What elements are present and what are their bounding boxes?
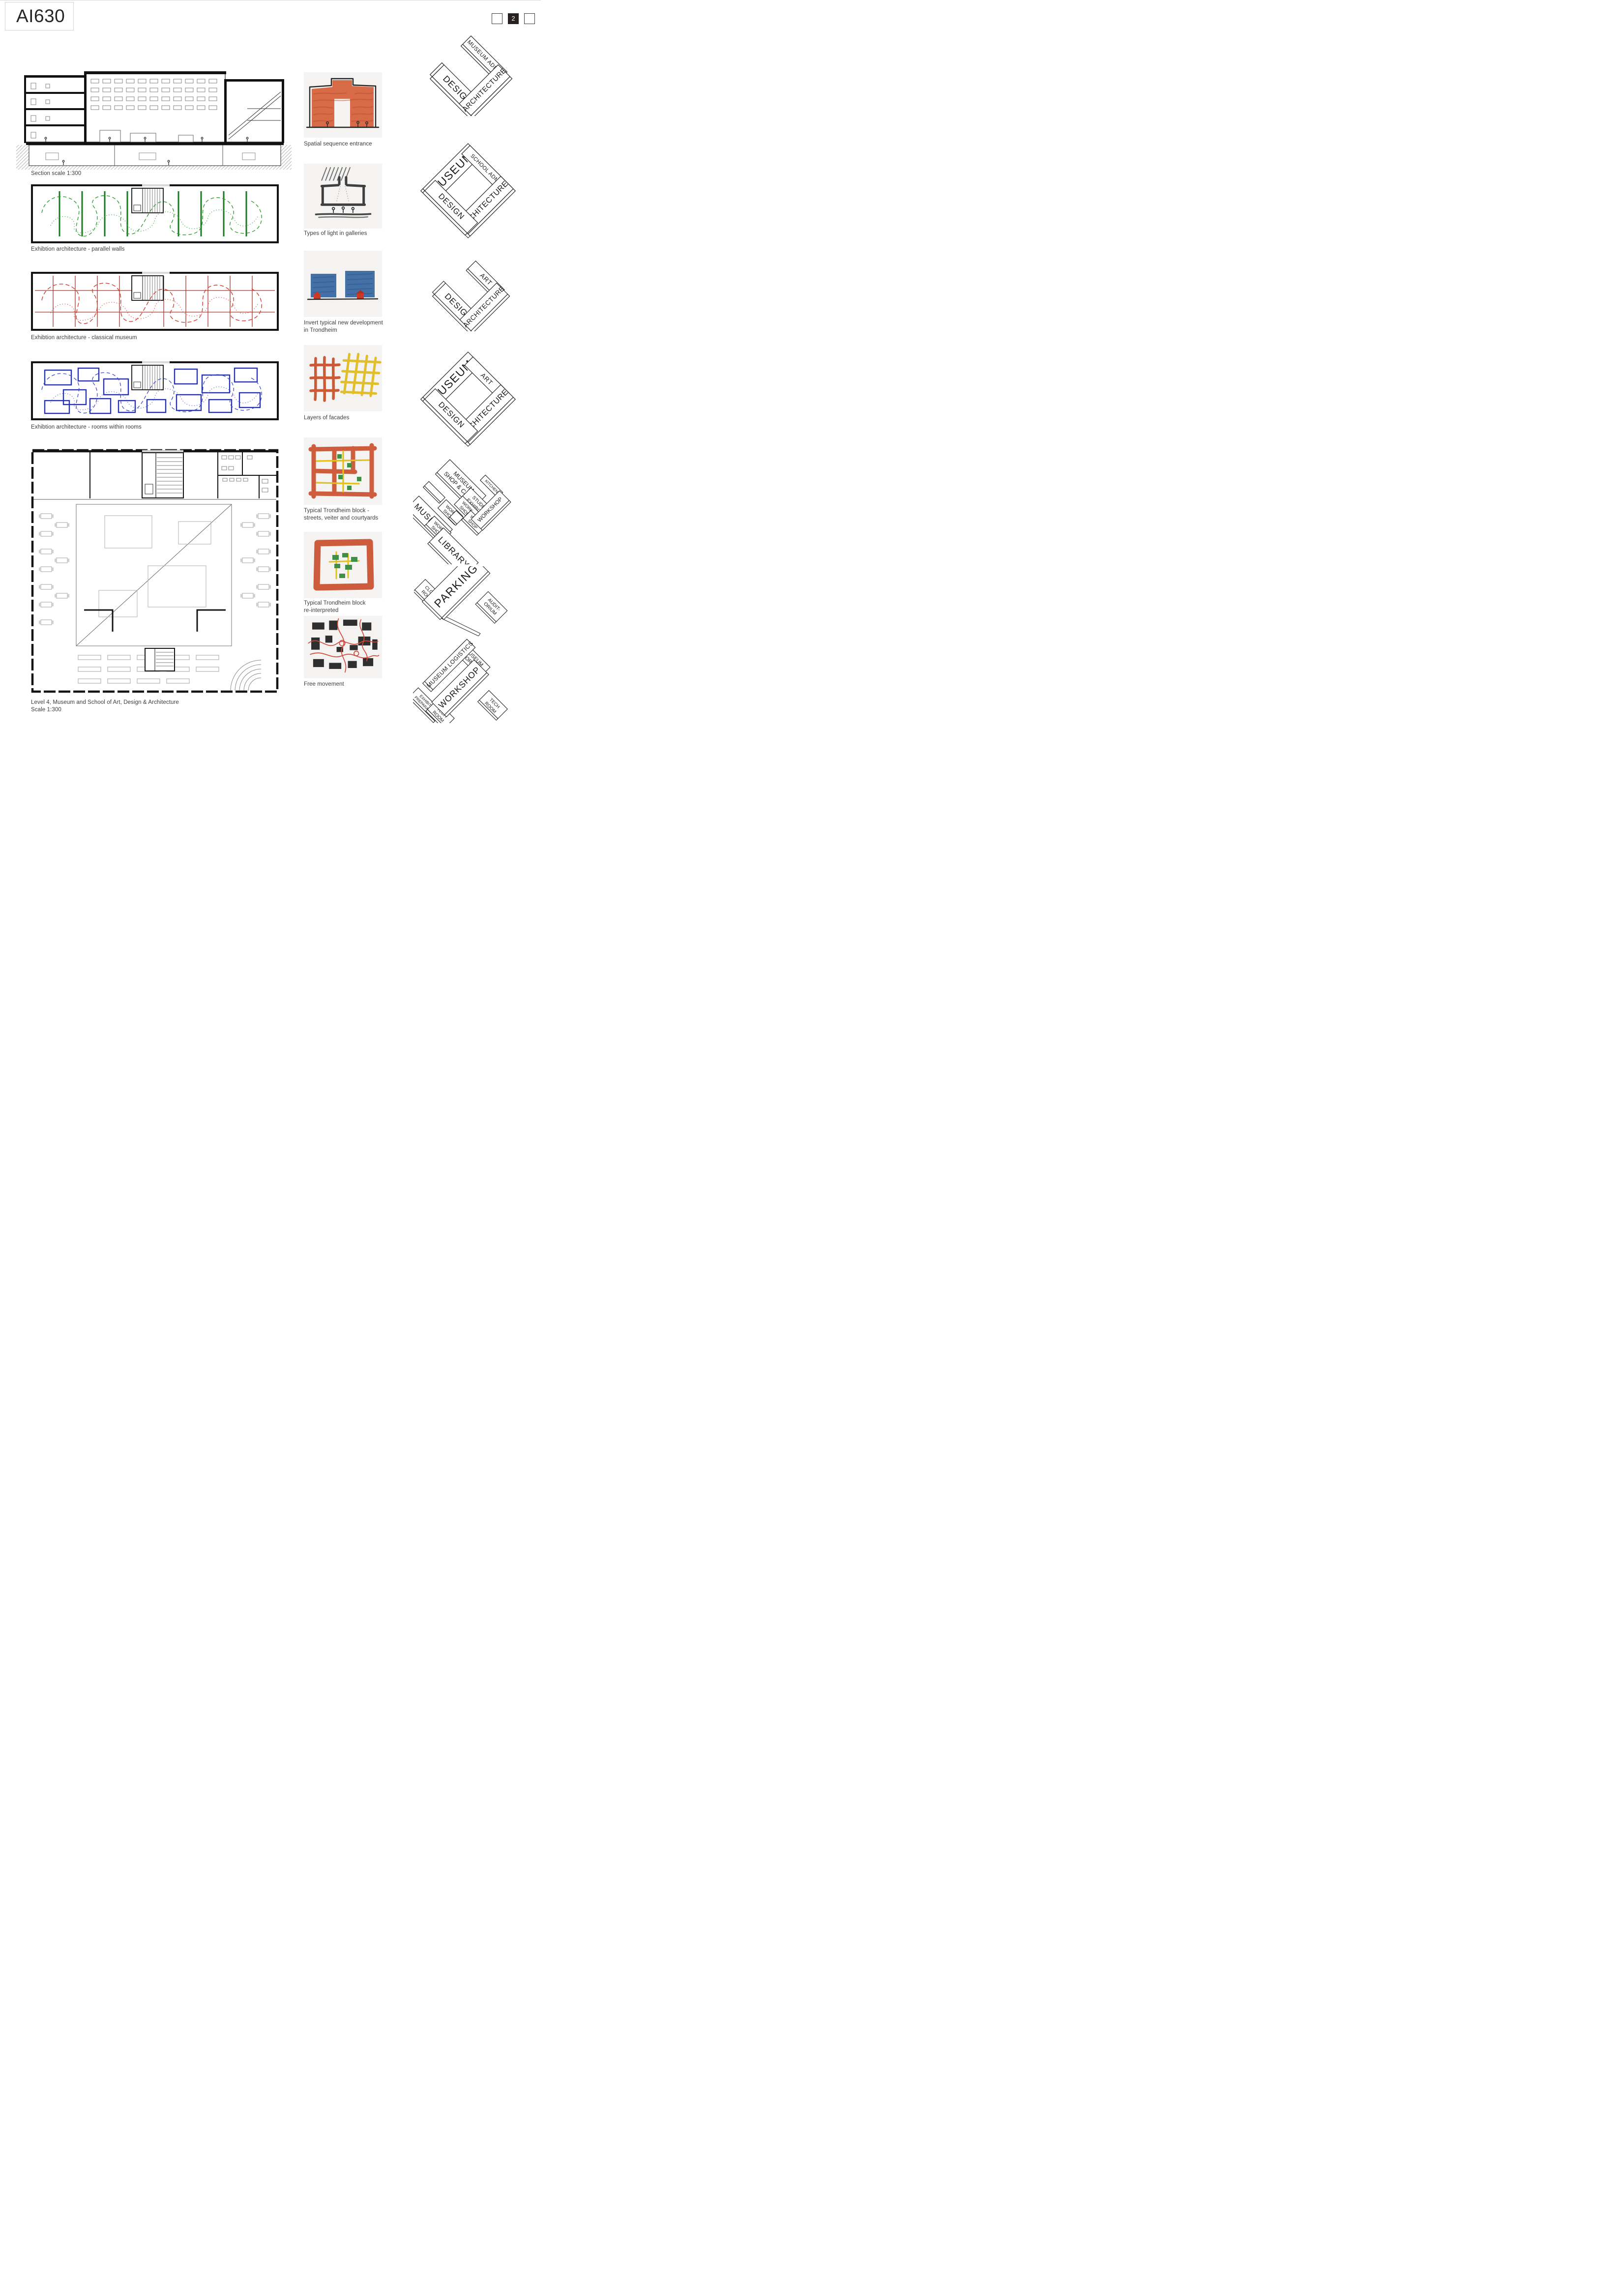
sketch3-caption-line1: Invert typical new development [304, 320, 392, 327]
diagram-museum-school-ring: MUSEUM SCHOOL ADMIN ARCHITECTURE DESIGN [414, 141, 522, 240]
sketch5-caption-line2: streets, veiter and courtyards [304, 515, 397, 522]
page-indicator: 2 [492, 13, 538, 24]
page-top-hairline [0, 0, 541, 0]
plan-parallel-walls [31, 184, 279, 243]
diagram-parking-level: CLOAK ROOM PARKING AUDIT- ORIUM [414, 566, 522, 636]
sketch-free-movement [304, 616, 382, 678]
sketch-invert-development [304, 251, 382, 317]
diagram-program-cluster: MUSEUM SHOP & CAFÉ KITCHEN STUDENT EXHIB… [413, 453, 524, 564]
plan2-caption: Exhibtion architecture - classical museu… [31, 334, 208, 342]
sketch3-caption-line2: in Trondheim [304, 327, 392, 334]
sketch1-caption: Spatial sequence entrance [304, 141, 392, 148]
project-title-box: AI630 [5, 2, 74, 30]
plan-classical-museum [31, 272, 279, 331]
diagram-logistics-level: MUSEUM STORAGE MUSEUM LOGISTICS EXHIBITI… [413, 637, 524, 723]
sketch6-caption-line1: Typical Trondheim block [304, 600, 392, 607]
plan4-caption-line1: Level 4, Museum and School of Art, Desig… [31, 699, 228, 706]
page-title: AI630 [16, 6, 65, 27]
sketch6-caption-line2: re-interpreted [304, 607, 392, 614]
plan3-caption: Exhibtion architecture - rooms within ro… [31, 424, 208, 431]
sketch6-caption: Typical Trondheim block re-interpreted [304, 600, 392, 614]
sketch-spatial-sequence-entrance [304, 72, 382, 138]
page-2-button-active[interactable]: 2 [508, 13, 519, 24]
sketch4-caption: Layers of facades [304, 414, 392, 422]
plan-level-4 [31, 449, 279, 693]
page-1-button[interactable] [492, 13, 502, 24]
sketch2-caption: Types of light in galleries [304, 230, 392, 237]
plan-rooms-within-rooms [31, 361, 279, 420]
diagram-museum-admin-wing: MUSEUM ADMIN DESIGN ARCHITECTURE [422, 31, 520, 116]
diagram-museum-art-ring: MUSEUM ART ARCHITECTURE DESIGN [414, 349, 522, 448]
sketch5-caption-line1: Typical Trondheim block - [304, 507, 397, 515]
sketch-light-in-galleries [304, 164, 382, 229]
sketch-layers-of-facades [304, 345, 382, 411]
diagram-art-wing: ART DESIGN ARCHITECTURE [422, 252, 520, 331]
section-caption: Section scale 1:300 [31, 170, 188, 177]
sketch7-caption: Free movement [304, 681, 392, 688]
plan4-caption: Level 4, Museum and School of Art, Desig… [31, 699, 228, 714]
sketch-block-reinterpreted [304, 532, 382, 598]
page-3-button[interactable] [524, 13, 535, 24]
plan4-caption-line2: Scale 1:300 [31, 706, 228, 714]
plan1-caption: Exhibtion architecture - parallel walls [31, 246, 208, 253]
sketch3-caption: Invert typical new development in Trondh… [304, 320, 392, 334]
building-section-drawing [16, 61, 292, 174]
sketch-trondheim-block [304, 437, 382, 505]
sketch5-caption: Typical Trondheim block - streets, veite… [304, 507, 397, 522]
